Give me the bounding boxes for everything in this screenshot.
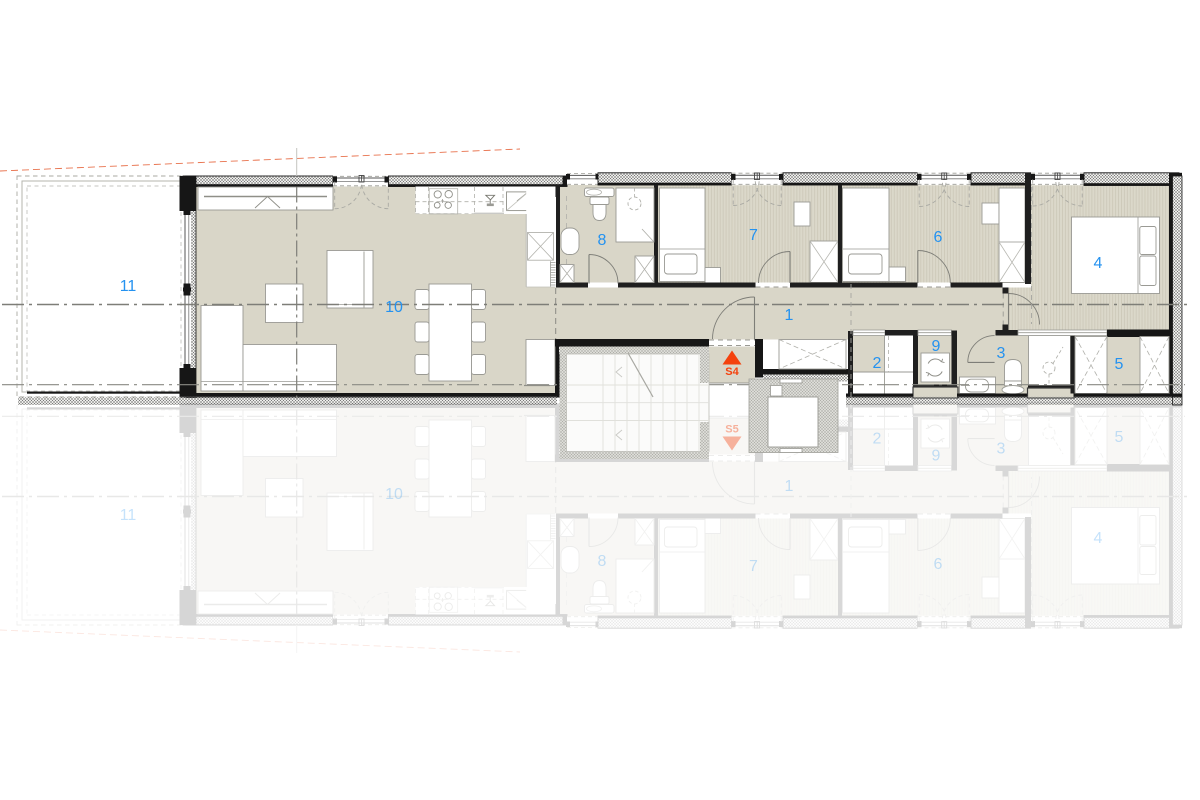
svg-text:8: 8 <box>598 553 607 570</box>
svg-text:7: 7 <box>749 227 758 244</box>
svg-text:8: 8 <box>598 232 607 249</box>
svg-text:11: 11 <box>120 507 137 524</box>
svg-text:4: 4 <box>1094 255 1103 272</box>
svg-text:1: 1 <box>785 478 794 495</box>
svg-text:9: 9 <box>932 338 941 355</box>
svg-text:5: 5 <box>1115 356 1124 373</box>
svg-text:6: 6 <box>934 556 943 573</box>
svg-text:S5: S5 <box>725 424 738 436</box>
svg-text:5: 5 <box>1115 429 1124 446</box>
svg-text:2: 2 <box>873 431 882 448</box>
svg-text:3: 3 <box>997 441 1006 458</box>
svg-text:3: 3 <box>997 345 1006 362</box>
svg-text:10: 10 <box>385 299 403 316</box>
svg-text:1: 1 <box>785 307 794 324</box>
svg-text:10: 10 <box>385 486 403 503</box>
svg-text:4: 4 <box>1094 530 1103 547</box>
svg-text:S4: S4 <box>725 366 739 378</box>
svg-text:6: 6 <box>934 229 943 246</box>
svg-text:11: 11 <box>120 278 137 295</box>
svg-text:2: 2 <box>873 355 882 372</box>
svg-text:9: 9 <box>932 448 941 465</box>
svg-text:7: 7 <box>749 558 758 575</box>
